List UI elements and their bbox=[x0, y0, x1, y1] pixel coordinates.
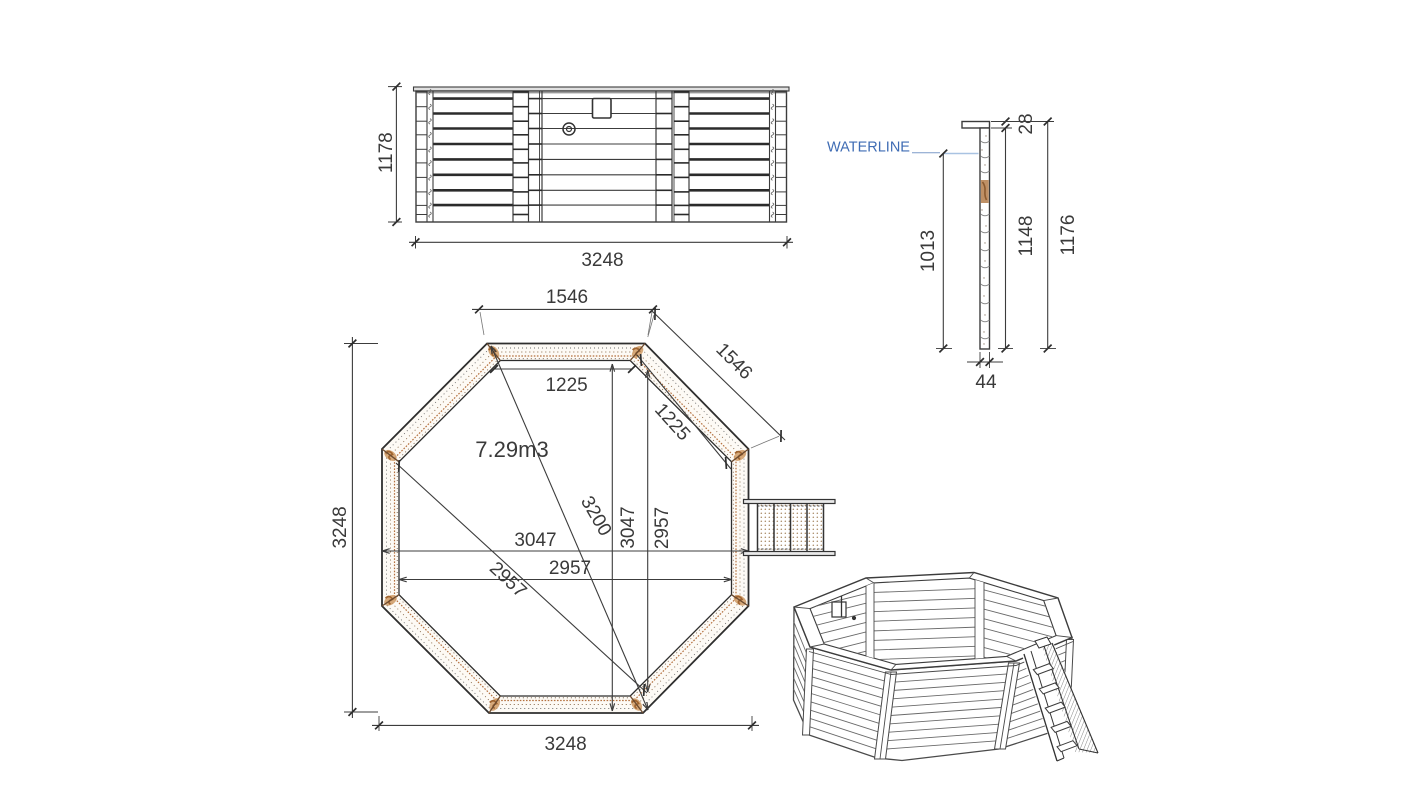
svg-text:3248: 3248 bbox=[544, 734, 586, 755]
svg-text:1225: 1225 bbox=[545, 375, 587, 396]
svg-text:1546: 1546 bbox=[546, 287, 588, 308]
svg-text:2957: 2957 bbox=[652, 507, 673, 549]
svg-text:7.29m3: 7.29m3 bbox=[475, 437, 548, 462]
svg-text:1176: 1176 bbox=[1058, 215, 1079, 256]
svg-text:1013: 1013 bbox=[918, 230, 939, 272]
svg-text:1148: 1148 bbox=[1016, 216, 1037, 257]
svg-text:3248: 3248 bbox=[330, 506, 351, 548]
svg-text:1178: 1178 bbox=[376, 132, 397, 173]
svg-text:3248: 3248 bbox=[581, 250, 623, 271]
svg-text:2957: 2957 bbox=[549, 558, 591, 579]
svg-text:28: 28 bbox=[1016, 113, 1037, 134]
svg-text:3047: 3047 bbox=[618, 506, 639, 548]
svg-text:WATERLINE: WATERLINE bbox=[827, 140, 910, 156]
svg-text:3047: 3047 bbox=[514, 530, 556, 551]
svg-text:44: 44 bbox=[975, 372, 997, 393]
